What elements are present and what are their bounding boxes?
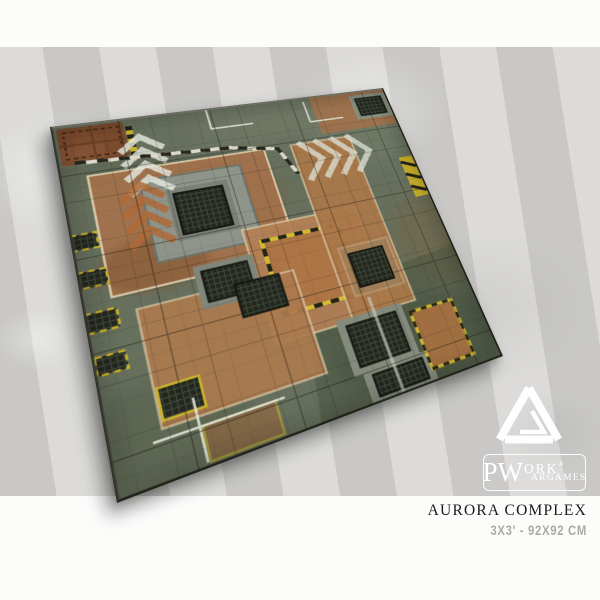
registered-mark: ® [558,461,563,468]
brand-wordmark: ORK® ARGAMES [524,462,587,484]
product-image: PW ORK® ARGAMES AURORA COMPLEX 3x3' - 92… [0,0,600,600]
product-title: AURORA COMPLEX [428,502,587,520]
brand-monogram: PW [482,459,523,486]
pwork-triangle-logo-icon [495,383,563,445]
top-white-band [0,0,600,47]
brand-logo-box: PW ORK® ARGAMES [483,454,586,491]
brand-word-bottom: ARGAMES [531,474,587,484]
product-size-label: 3x3' - 92x92 cm [490,523,587,538]
